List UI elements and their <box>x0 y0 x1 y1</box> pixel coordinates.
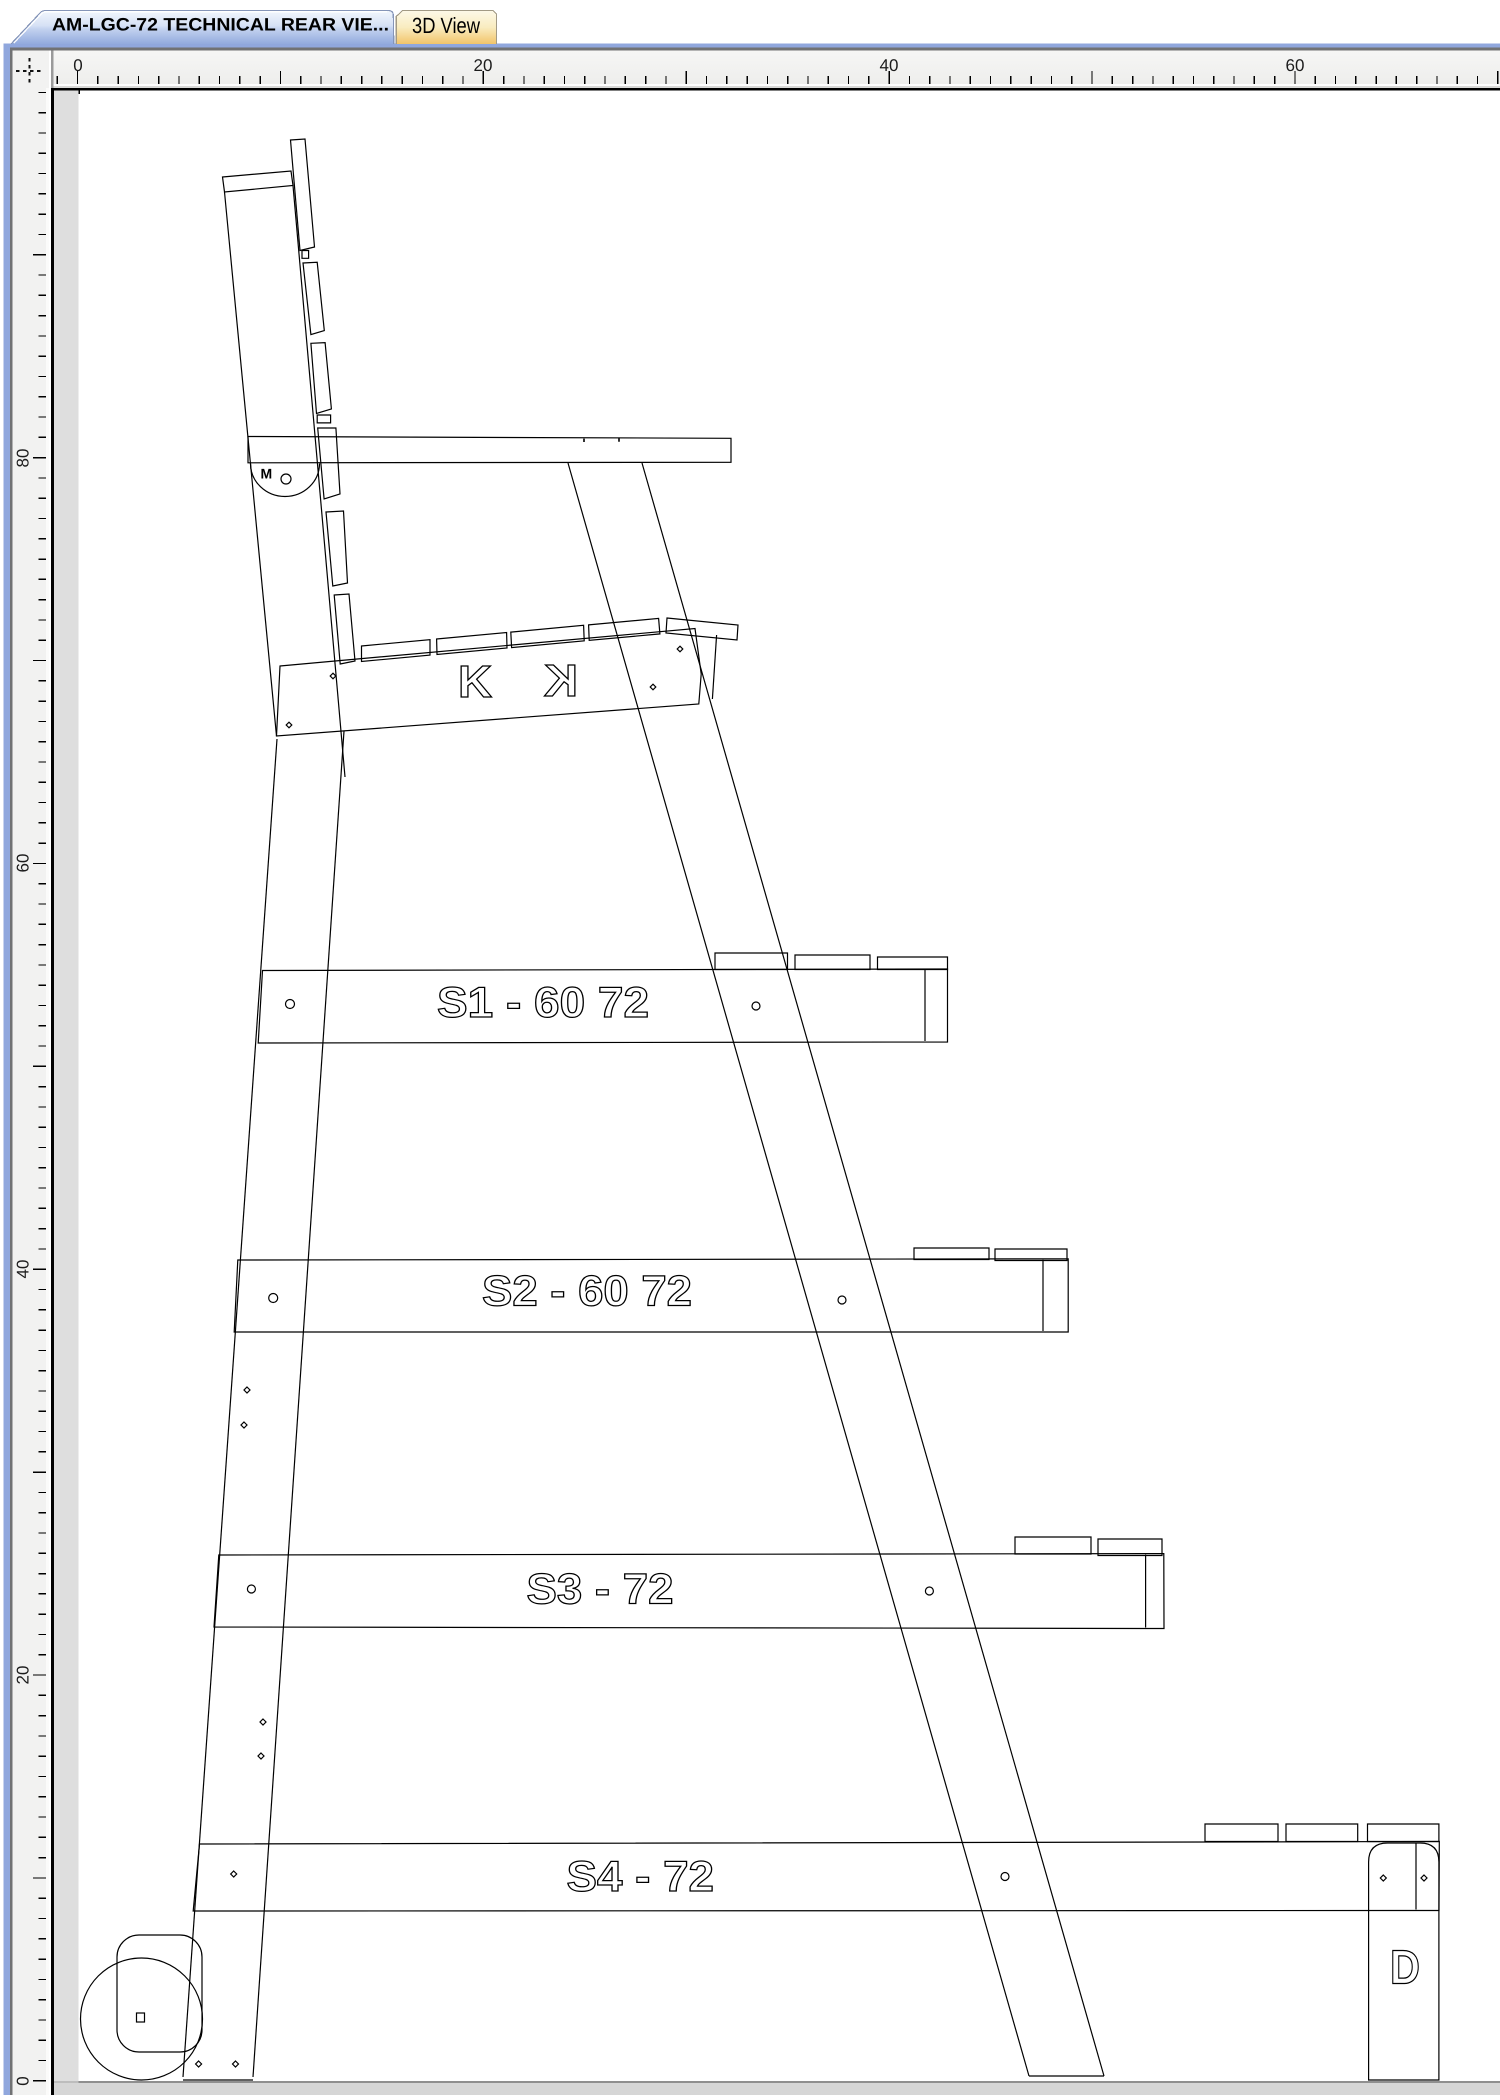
svg-text:80: 80 <box>13 449 32 468</box>
svg-text:20: 20 <box>474 56 493 75</box>
svg-text:20: 20 <box>13 1666 32 1685</box>
svg-text:0: 0 <box>73 56 82 75</box>
svg-text:60: 60 <box>1286 56 1305 75</box>
svg-text:AM-LGC-72 TECHNICAL REAR VIE..: AM-LGC-72 TECHNICAL REAR VIE... <box>52 15 389 35</box>
svg-text:S3 - 72: S3 - 72 <box>527 1566 674 1614</box>
svg-text:D: D <box>1390 1942 1420 1995</box>
svg-text:S1 - 60 72: S1 - 60 72 <box>437 979 649 1027</box>
svg-text:M: M <box>261 466 273 482</box>
svg-text:K: K <box>458 656 493 707</box>
svg-text:S2 - 60 72: S2 - 60 72 <box>482 1268 692 1316</box>
svg-text:K: K <box>543 655 578 706</box>
svg-text:60: 60 <box>13 854 32 873</box>
svg-text:S4 - 72: S4 - 72 <box>567 1853 715 1901</box>
svg-text:40: 40 <box>880 56 899 75</box>
svg-text:3D View: 3D View <box>412 13 480 38</box>
svg-text:0: 0 <box>13 2076 32 2085</box>
svg-text:40: 40 <box>13 1260 32 1279</box>
